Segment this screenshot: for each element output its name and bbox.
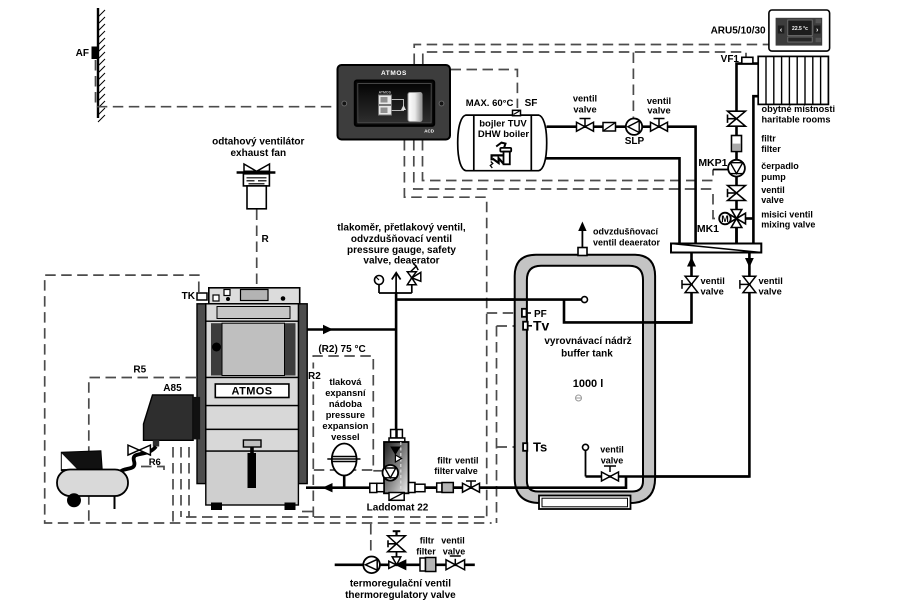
svg-text:A85: A85 [163, 383, 182, 394]
svg-text:ventil: ventil [455, 456, 479, 466]
svg-text:odvzdušňovací ventil: odvzdušňovací ventil [351, 234, 452, 245]
svg-text:R6: R6 [149, 457, 161, 468]
svg-text:tlaková: tlaková [329, 377, 362, 387]
svg-text:ventil: ventil [441, 536, 465, 546]
svg-text:expansní: expansní [325, 388, 366, 398]
svg-text:tlakoměr, přetlakový ventil,: tlakoměr, přetlakový ventil, [337, 223, 466, 234]
svg-text:ventil: ventil [761, 185, 785, 195]
svg-text:termoregulační ventil: termoregulační ventil [350, 579, 451, 590]
svg-text:Ts: Ts [533, 440, 547, 455]
svg-text:valve: valve [701, 286, 724, 296]
svg-text:MAX. 60°C: MAX. 60°C [466, 98, 514, 109]
svg-text:Tv: Tv [533, 318, 550, 334]
svg-text:AF: AF [76, 48, 89, 59]
svg-text:ATMOS: ATMOS [232, 386, 273, 398]
svg-text:ventil: ventil [647, 96, 671, 106]
svg-text:buffer tank: buffer tank [561, 348, 613, 359]
svg-text:R: R [262, 234, 270, 245]
svg-text:SLP: SLP [625, 136, 645, 147]
svg-text:exhaust fan: exhaust fan [231, 148, 287, 159]
svg-text:valve: valve [761, 195, 784, 205]
svg-text:odtahový ventilátor: odtahový ventilátor [212, 136, 304, 147]
svg-text:DHW boiler: DHW boiler [478, 129, 529, 140]
svg-text:VF1: VF1 [721, 54, 740, 65]
svg-text:ACD: ACD [424, 129, 434, 134]
svg-text:thermoregulatory valve: thermoregulatory valve [345, 590, 456, 600]
svg-text:M: M [721, 214, 729, 224]
svg-text:haritable rooms: haritable rooms [762, 115, 831, 125]
svg-text:MK1: MK1 [697, 223, 719, 235]
svg-text:pressure: pressure [326, 410, 365, 420]
svg-text:pump: pump [761, 172, 786, 182]
svg-text:filter: filter [761, 144, 781, 154]
svg-text:filtr: filtr [761, 134, 776, 144]
svg-text:valve: valve [573, 105, 596, 115]
svg-text:mixing valve: mixing valve [761, 220, 815, 230]
svg-text:filter: filter [416, 547, 436, 557]
svg-text:1000 l: 1000 l [573, 378, 604, 390]
svg-text:R5: R5 [133, 365, 146, 376]
svg-text:vyrovnávací nádrž: vyrovnávací nádrž [544, 336, 631, 347]
svg-text:ATMOS: ATMOS [379, 91, 392, 95]
svg-text:Laddomat 22: Laddomat 22 [367, 503, 429, 514]
svg-text:filtr: filtr [437, 456, 452, 466]
svg-text:ventil: ventil [759, 276, 783, 286]
svg-text:obytné místnosti: obytné místnosti [762, 104, 836, 114]
svg-text:22.5 °c: 22.5 °c [792, 26, 808, 32]
svg-text:valve: valve [647, 106, 670, 116]
svg-text:expansion: expansion [322, 421, 368, 431]
svg-text:MKP1: MKP1 [698, 157, 727, 169]
svg-text:ventil deaerator: ventil deaerator [593, 238, 661, 248]
svg-text:(R2) 75 °C: (R2) 75 °C [318, 344, 365, 355]
svg-text:valve: valve [601, 456, 624, 466]
svg-text:nádoba: nádoba [329, 399, 363, 409]
svg-text:valve, deaerator: valve, deaerator [363, 255, 439, 266]
svg-text:odvzdušňovací: odvzdušňovací [593, 227, 659, 237]
svg-text:misici ventil: misici ventil [761, 209, 813, 219]
svg-text:SF: SF [525, 98, 538, 109]
svg-text:filter: filter [434, 466, 454, 476]
svg-text:ventil: ventil [573, 93, 597, 103]
svg-text:valve: valve [759, 286, 782, 296]
svg-text:ventil: ventil [600, 445, 624, 455]
svg-text:valve: valve [443, 547, 466, 557]
svg-text:filtr: filtr [420, 536, 435, 546]
svg-text:bojler TUV: bojler TUV [479, 119, 527, 130]
svg-text:čerpadlo: čerpadlo [761, 161, 799, 171]
svg-text:ATMOS: ATMOS [381, 70, 407, 77]
svg-text:vessel: vessel [331, 432, 359, 442]
svg-text:ARU5/10/30: ARU5/10/30 [711, 25, 766, 36]
svg-text:ventil: ventil [701, 276, 725, 286]
svg-text:valve: valve [455, 466, 478, 476]
svg-text:R2: R2 [308, 371, 321, 382]
svg-text:TK: TK [182, 291, 196, 302]
